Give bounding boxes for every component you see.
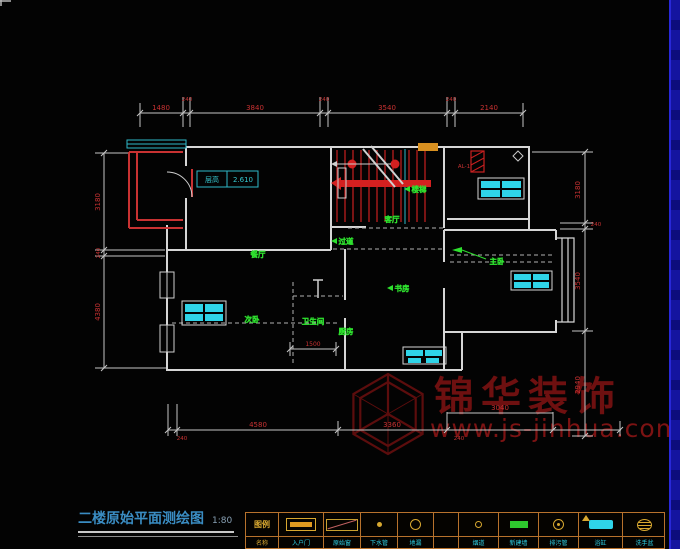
height-value: 2.610 (233, 176, 253, 184)
room-label: 餐厅 (250, 249, 266, 259)
right-dimension-labels: 3180 240 3540 2940 (574, 181, 602, 394)
door-symbol-icon (286, 518, 316, 531)
dim-value: 240 (454, 436, 465, 442)
bay-window (556, 238, 574, 322)
balcony (129, 152, 183, 228)
bottom-dimension (165, 404, 623, 436)
legend-cell-new-wall: 新建墙 (499, 513, 539, 548)
dim-value: 4580 (249, 421, 267, 429)
room-label: 书房 (395, 283, 410, 293)
legend-name: 原始窗 (324, 537, 360, 548)
drawing-title-text: 二楼原始平面测绘图 (78, 511, 204, 527)
furniture-block-bedroom (182, 301, 226, 325)
dim-value: 3540 (378, 104, 396, 112)
room-label: 主卧 (490, 256, 505, 266)
legend-table: 图例 名称 入户门 原始窗 下水管 地漏 烟道 新建墙 (245, 512, 665, 549)
dim-value: 240 (591, 222, 602, 228)
room-label: 过道 (339, 236, 354, 246)
dim-value: 4380 (94, 303, 102, 321)
dim-value: 240 (177, 436, 188, 442)
dim-value: 1480 (152, 104, 170, 112)
dim-value: 3840 (246, 104, 264, 112)
drawing-scale: 1:80 (212, 516, 232, 526)
entry-door (167, 169, 192, 197)
interior-dimension: 1500 (287, 341, 339, 356)
dim-value: 1500 (305, 341, 320, 348)
left-dimension-labels: 3180 240 4380 (94, 193, 102, 321)
bottom-dimension-labels: 240 4580 3360 3040 240 (177, 404, 509, 442)
dim-value: 3540 (574, 272, 582, 290)
window-symbol-icon (326, 519, 358, 531)
bathtub-symbol-icon (589, 520, 613, 529)
right-scrollbar[interactable] (669, 0, 680, 549)
dim-value: 3040 (491, 404, 509, 412)
circle-symbol-icon (410, 519, 421, 530)
legend-cell-empty (434, 513, 459, 548)
dot-symbol-icon (377, 522, 382, 527)
basin-symbol-icon (637, 519, 652, 531)
legend-name: 下水管 (361, 537, 397, 548)
dim-value: 240 (182, 97, 193, 103)
legend-cell-basin: 洗手盆 (623, 513, 665, 548)
room-label: 厨房 (339, 326, 354, 336)
legend-name: 烟道 (459, 537, 498, 548)
furniture-block-bath (478, 178, 524, 199)
title-block: 二楼原始平面测绘图1:80 (78, 508, 238, 537)
dim-value: 3360 (383, 421, 401, 429)
small-circle-symbol-icon (475, 521, 482, 528)
flue-label: AL-1 (458, 164, 470, 170)
legend-cell-header: 图例 名称 (246, 513, 279, 548)
legend-cell-sewage: 排污管 (539, 513, 579, 548)
legend-cell-floor-drain: 地漏 (398, 513, 434, 548)
corner-artifact (0, 0, 11, 6)
cad-viewer: 锦华装饰 www.js-jinhua.com 1480 240 3840 240… (0, 0, 680, 549)
flue-symbol (471, 151, 484, 172)
dim-value: 3180 (574, 181, 582, 199)
dim-value: 2940 (574, 376, 582, 394)
legend-name: 浴缸 (579, 537, 622, 548)
legend-name: 名称 (246, 537, 278, 548)
legend-cell-door: 入户门 (279, 513, 324, 548)
floor-plan-canvas: 1480 240 3840 240 3540 240 2140 3180 240… (0, 0, 680, 549)
dim-value: 2140 (480, 104, 498, 112)
door-marker (418, 143, 438, 151)
dim-value: 3180 (94, 193, 102, 211)
furniture-block-master (511, 271, 552, 290)
legend-cell-window: 原始窗 (324, 513, 361, 548)
legend-name: 新建墙 (499, 537, 538, 548)
room-label: 卫生间 (302, 316, 325, 326)
left-dimension (95, 150, 166, 371)
balcony-window (127, 140, 186, 148)
room-label: 次卧 (245, 314, 260, 324)
top-dimension-labels: 1480 240 3840 240 3540 240 2140 (152, 97, 498, 112)
room-label: 楼梯 (412, 184, 427, 194)
room-label: 客厅 (384, 214, 400, 224)
furniture-block-living (403, 347, 446, 364)
legend-name (434, 537, 458, 548)
height-label-box: 层高 2.610 (197, 171, 258, 187)
legend-cell-drain: 下水管 (361, 513, 398, 548)
diamond-icon (513, 151, 523, 161)
top-dimension (137, 97, 526, 127)
green-rect-symbol-icon (510, 521, 528, 528)
room-labels: 餐厅 过道 客厅 楼梯 主卧 书房 卫生间 次卧 厨房 (245, 184, 505, 336)
dashed-lines (172, 228, 552, 366)
title-underline-2 (78, 536, 238, 537)
legend-name: 排污管 (539, 537, 578, 548)
circle-dot-symbol-icon (553, 519, 564, 530)
legend-cell-flue: 烟道 (459, 513, 499, 548)
drawing-title: 二楼原始平面测绘图1:80 (78, 508, 238, 528)
legend-header: 图例 (254, 519, 270, 530)
legend-name: 入户门 (279, 537, 323, 548)
dim-value: 240 (96, 247, 102, 258)
dim-value: 240 (446, 97, 457, 103)
legend-cell-bathtub: 浴缸 (579, 513, 623, 548)
legend-name: 洗手盆 (623, 537, 665, 548)
height-label: 层高 (205, 175, 219, 184)
dim-value: 240 (319, 97, 330, 103)
legend-name: 地漏 (398, 537, 433, 548)
wall-niche (313, 280, 323, 298)
title-underline (78, 531, 234, 533)
